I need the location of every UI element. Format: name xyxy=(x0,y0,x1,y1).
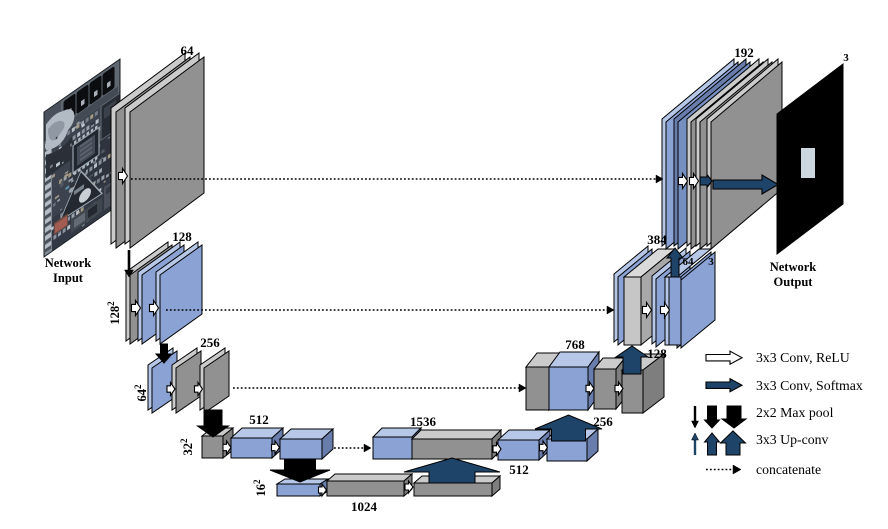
svg-text:128: 128 xyxy=(647,346,667,361)
svg-text:Network: Network xyxy=(45,256,92,270)
svg-text:2x2 Max pool: 2x2 Max pool xyxy=(756,405,834,420)
svg-text:192: 192 xyxy=(734,45,754,60)
svg-text:256: 256 xyxy=(593,414,613,429)
svg-text:Output: Output xyxy=(774,275,814,289)
svg-text:3x3 Conv, ReLU: 3x3 Conv, ReLU xyxy=(756,350,850,365)
svg-text:64: 64 xyxy=(181,43,195,58)
svg-text:768: 768 xyxy=(565,337,585,352)
svg-text:384: 384 xyxy=(647,232,667,247)
svg-text:3x3 Up-conv: 3x3 Up-conv xyxy=(756,432,829,447)
svg-text:Input: Input xyxy=(53,271,84,285)
svg-text:64: 64 xyxy=(683,256,695,268)
svg-text:1024: 1024 xyxy=(351,499,378,514)
svg-text:3: 3 xyxy=(708,256,714,268)
svg-text:512: 512 xyxy=(509,462,529,477)
svg-text:512: 512 xyxy=(249,412,269,427)
svg-text:128: 128 xyxy=(172,229,192,244)
svg-text:1536: 1536 xyxy=(410,414,437,429)
svg-text:3: 3 xyxy=(843,52,849,64)
svg-text:Network: Network xyxy=(770,260,817,274)
svg-text:concatenate: concatenate xyxy=(756,462,821,477)
svg-text:256: 256 xyxy=(200,335,220,350)
svg-text:3x3 Conv, Softmax: 3x3 Conv, Softmax xyxy=(756,378,863,393)
